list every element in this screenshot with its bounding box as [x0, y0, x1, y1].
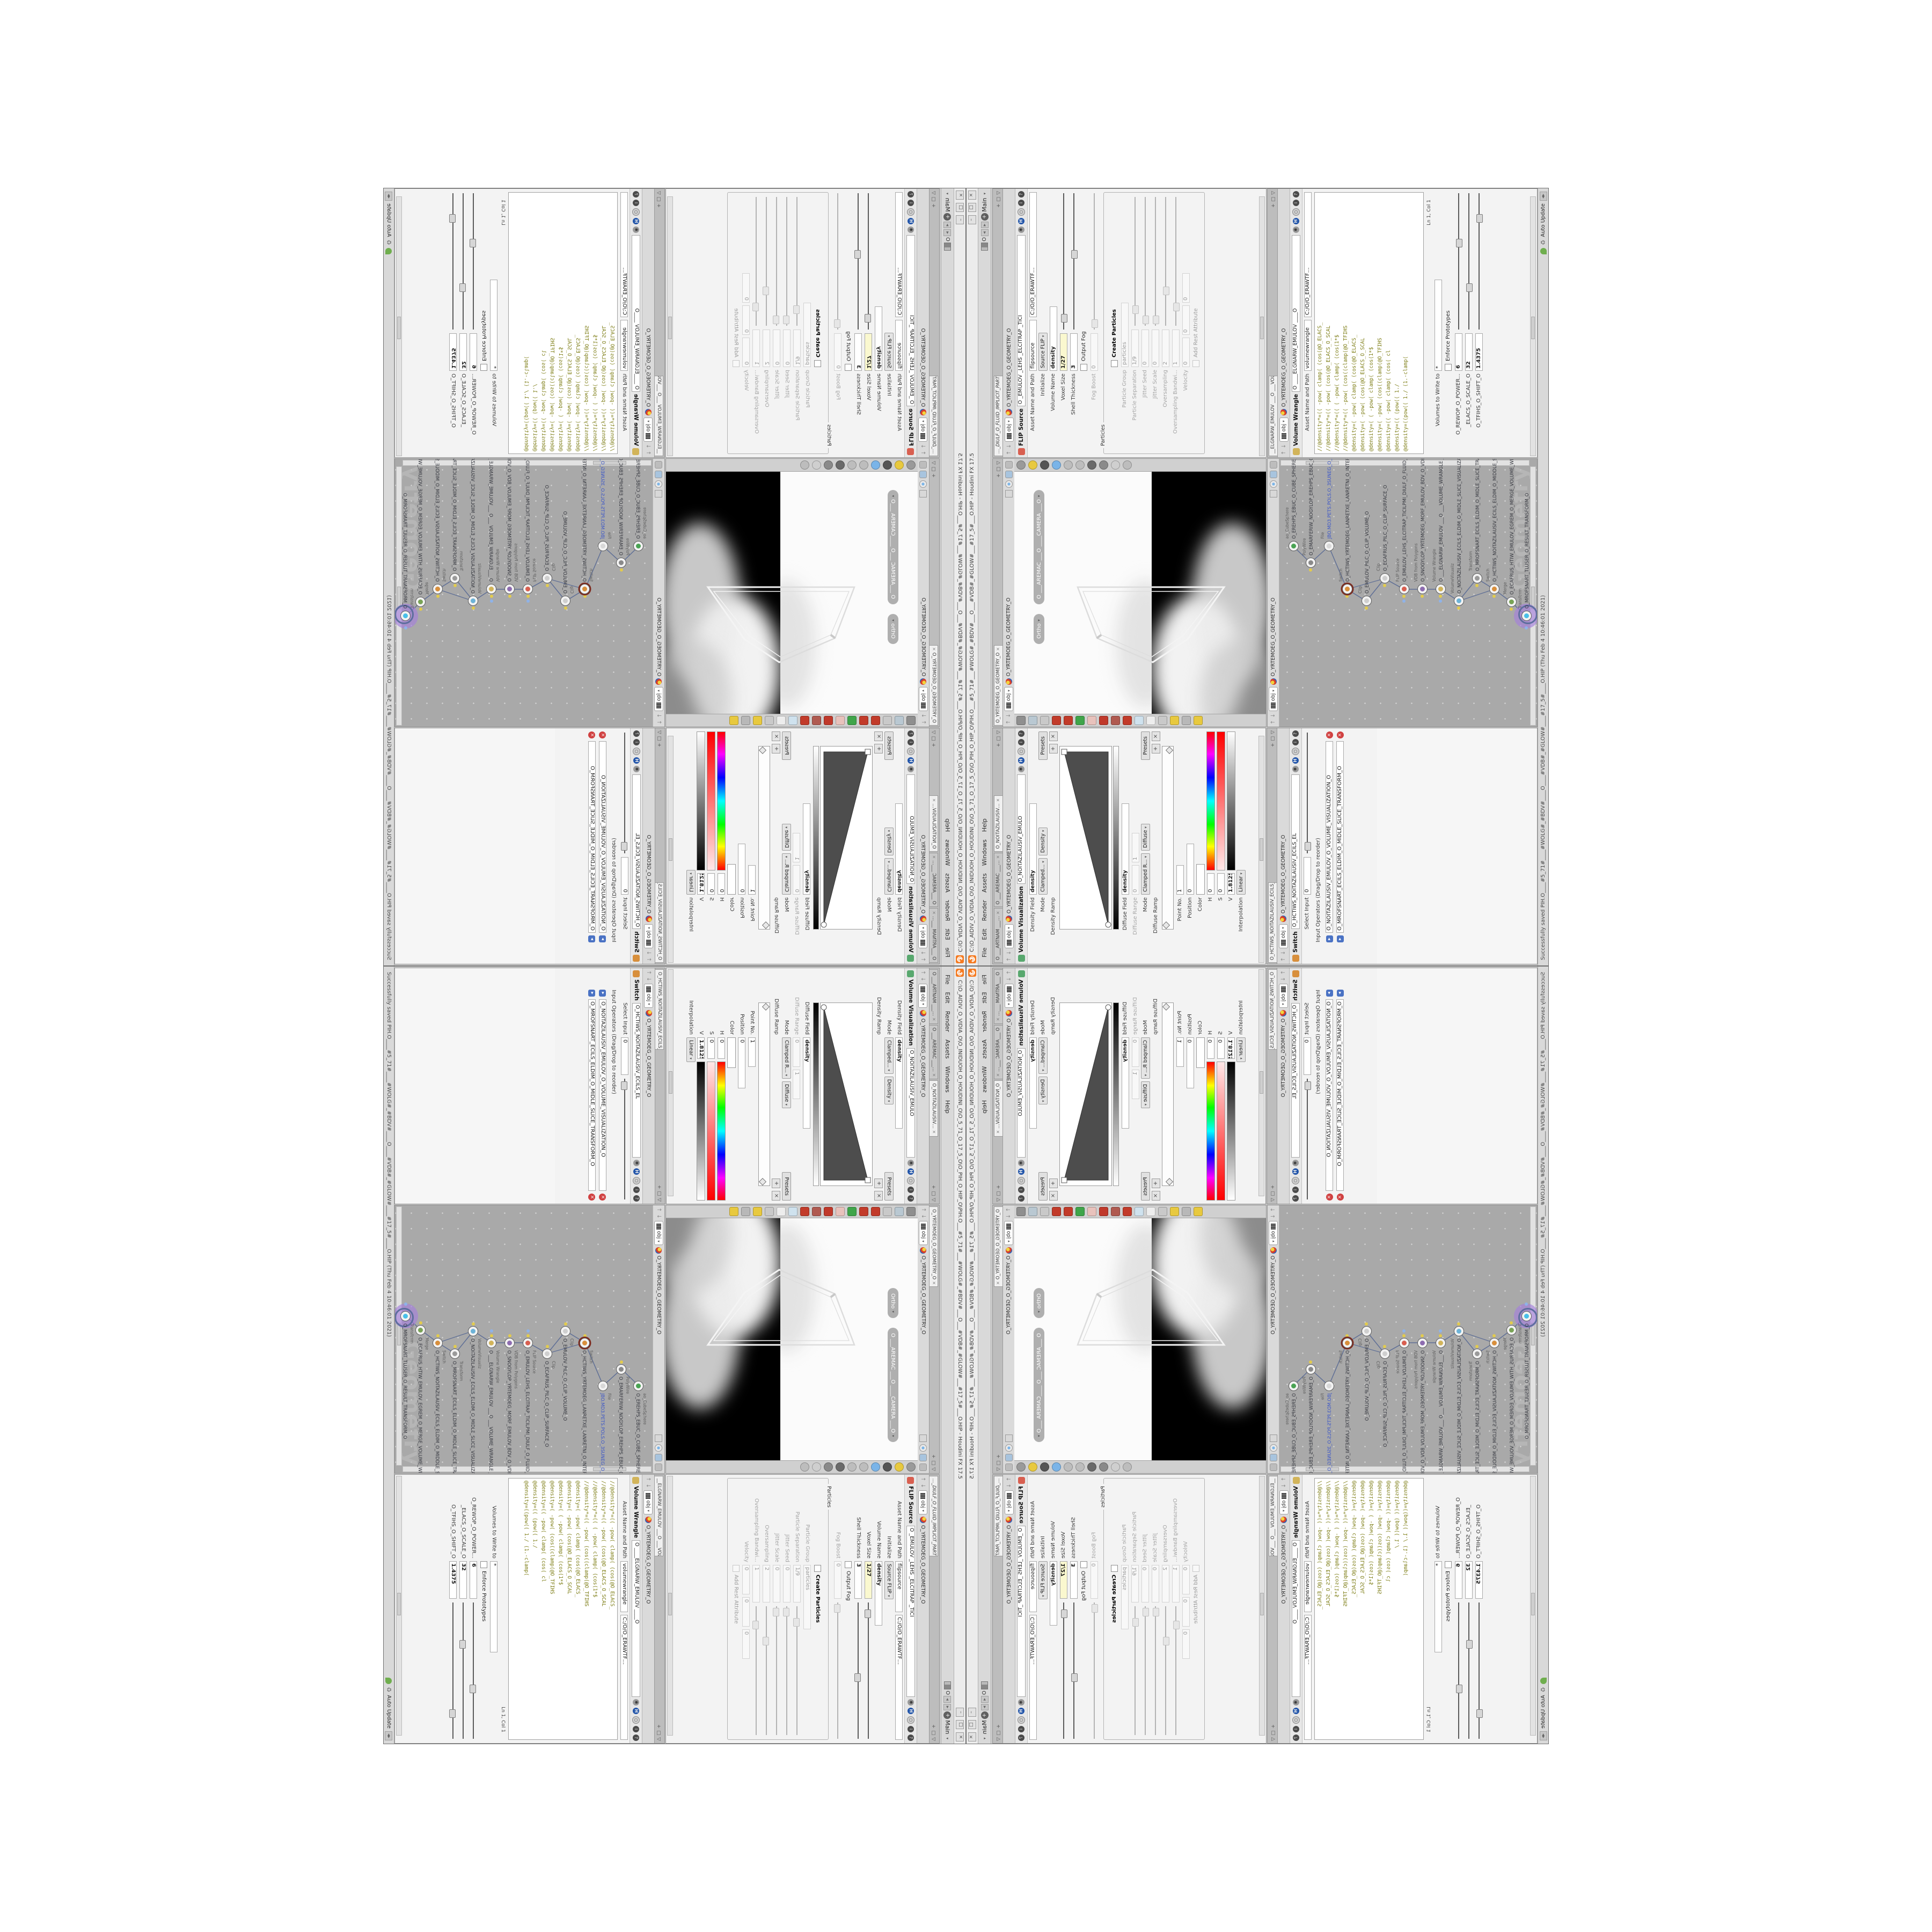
input-operator-field[interactable]: O_NOITAZILAUSIV_EMULOV_O_VOLUME_VISUALIZ… — [1326, 999, 1333, 1191]
value-slider[interactable] — [697, 731, 706, 870]
network-node[interactable] — [1289, 1381, 1299, 1391]
network-node[interactable] — [450, 573, 460, 583]
layout-icon[interactable] — [944, 243, 951, 251]
title-bar[interactable]: C:\O_AIDIV_O_VIDIA_O\O_INIDUOH_O_HOUDINI… — [967, 188, 978, 965]
nav-down-icon[interactable]: ↓ — [1006, 713, 1012, 718]
grid-tool-icon[interactable] — [1028, 1462, 1037, 1472]
menu-item[interactable]: Assets — [943, 1036, 952, 1063]
pane-tab[interactable]: O ___AREMAC ___…× — [994, 853, 1002, 908]
horn-hook-icon[interactable] — [824, 460, 833, 470]
prev-arrow-icon[interactable] — [883, 716, 892, 725]
view-tool-icon[interactable] — [1016, 716, 1026, 725]
node-path[interactable]: O_YRTEMOEG_O_GEOMETRY_O — [1280, 835, 1286, 914]
search-icon[interactable]: ○ — [907, 1177, 914, 1184]
link-chain-icon[interactable] — [800, 1462, 809, 1472]
network-path[interactable]: O_YRTEMOEG_O_GEOMETRY_O — [656, 598, 662, 677]
diffuse-field-input[interactable]: density — [803, 1037, 811, 1129]
spare-param-input[interactable]: 32 — [460, 1561, 467, 1599]
pane-controls[interactable]: +□▽ — [930, 1454, 936, 1473]
desktop-selector[interactable]: Main — [944, 1720, 951, 1736]
ramp-point-marker[interactable] — [1166, 1178, 1173, 1185]
spare-param-slider[interactable] — [1465, 1601, 1473, 1740]
node-name-label[interactable]: O_SNOGYLOP_YRTEMOEG_MORF_EMULOV_BDV_O_VD… — [506, 459, 511, 582]
horizontal-scrollbar[interactable] — [1258, 969, 1264, 1196]
axis-gizmo-icon[interactable] — [847, 716, 857, 725]
nav-up-icon[interactable]: ↑ — [1280, 957, 1286, 962]
diffuse-attr-dropdown[interactable]: Diffuse▾ — [1141, 824, 1150, 851]
oversampling-slider[interactable] — [1162, 1605, 1169, 1736]
search-icon[interactable]: ○ — [907, 1716, 914, 1724]
switch-name-field[interactable]: O_HCTIWS_NOITAZILAUSIV_ECILS_EL — [632, 774, 641, 929]
camera-pill[interactable]: O ___AREMAC ___O ____CAMERA ___O▾ — [1034, 1328, 1044, 1442]
network-node[interactable] — [523, 1338, 533, 1348]
bypass-flag[interactable] — [508, 1334, 511, 1337]
saturation-input[interactable]: 0 — [708, 1037, 715, 1059]
oversampling-input[interactable]: 2 — [1162, 1565, 1169, 1602]
view-mode-pill[interactable]: Ortho▾ — [1034, 614, 1044, 644]
enforce-prototypes-checkbox[interactable] — [480, 1561, 487, 1568]
gear-icon[interactable]: ✱ — [908, 766, 914, 772]
presets-button[interactable]: Presets — [782, 731, 791, 760]
select-input-slider[interactable] — [1304, 1078, 1311, 1201]
oversampling-slider[interactable] — [763, 1605, 771, 1736]
input-operator-field[interactable]: O_MROFSNART_ECILS_ELDIM_O_MIDLE_SLICE_TR… — [1336, 741, 1344, 933]
nav-down-icon[interactable]: ↓ — [920, 444, 926, 448]
viewport-tab[interactable]: O_YRTEMOEG_O_GEOMETRY_O× — [930, 645, 938, 726]
nav-up-icon[interactable]: ↑ — [1281, 451, 1287, 455]
fog-boost-input[interactable]: 0 — [835, 333, 842, 371]
network-node[interactable] — [1399, 1338, 1409, 1348]
nav-down-icon[interactable]: ↓ — [1006, 950, 1012, 955]
bypass-flag[interactable] — [1383, 1345, 1386, 1348]
hscript-icon[interactable]: H — [1018, 218, 1024, 224]
network-node[interactable] — [1521, 611, 1532, 621]
horizontal-scrollbar[interactable] — [1258, 736, 1264, 963]
fog-boost-slider[interactable] — [1091, 1601, 1098, 1740]
oversampling-bandwidth-slider[interactable] — [753, 196, 760, 327]
node-path[interactable]: O_YRTEMOEG_O_GEOMETRY_O — [920, 835, 926, 914]
select-arrow-icon[interactable] — [777, 1207, 786, 1216]
nav-up-icon[interactable]: ↑ — [920, 451, 926, 455]
network-node[interactable] — [542, 1349, 552, 1359]
wrangle-tab[interactable]: __ELGNARW_EMULOV ___O ___VOLUME_WRANGL…× — [655, 376, 663, 456]
viewport-canvas[interactable]: Ortho▾ O ___AREMAC ___O ____CAMERA ___O▾ — [666, 472, 918, 714]
menu-item[interactable]: Help — [980, 1096, 989, 1117]
shade-diamond-icon[interactable] — [741, 1207, 750, 1216]
spare-param-input[interactable]: 32 — [460, 333, 467, 371]
network-path[interactable]: O_YRTEMOEG_O_GEOMETRY_O — [656, 1256, 662, 1335]
diffuse-attr-dropdown[interactable]: Diffuse▾ — [782, 824, 791, 851]
nav-down-icon[interactable]: ↓ — [920, 1214, 926, 1218]
menu-item[interactable]: Help — [943, 1096, 952, 1117]
select-input[interactable]: 0 — [1304, 1037, 1311, 1075]
fog-boost-slider[interactable] — [1091, 192, 1098, 331]
tab-close-icon[interactable]: × — [996, 855, 1002, 859]
tripod-icon[interactable] — [1075, 1462, 1085, 1472]
shell-thickness-input[interactable]: 3 — [1070, 1561, 1078, 1599]
initialize-dropdown[interactable]: Source FLIP▾ — [884, 333, 894, 371]
network-canvas[interactable]: Geometry ao_CubeSphereO_EREHPS_EBUC_O_CU… — [1279, 459, 1537, 727]
initialize-dropdown[interactable]: Source FLIP▾ — [884, 1561, 894, 1599]
reorder-icon[interactable]: ▸ — [599, 935, 606, 942]
viewport-canvas[interactable]: Ortho▾ O ___AREMAC ___O ____CAMERA ___O▾ — [1014, 472, 1266, 714]
nav-up-icon[interactable]: ↑ — [1006, 451, 1012, 455]
nav-down-icon[interactable]: ↓ — [656, 713, 662, 718]
nav-up-icon[interactable]: ↑ — [920, 1477, 926, 1481]
bypass-flag[interactable] — [620, 568, 623, 572]
remove-input-icon[interactable]: × — [1326, 1194, 1333, 1201]
pane-link-icons[interactable] — [1270, 461, 1277, 497]
flip-name-field[interactable]: O _EMULOV _LEHS _ELCITRAP _TICI — [906, 235, 915, 406]
value-input[interactable]: 1.8125 — [698, 1037, 705, 1059]
add-rest-checkbox[interactable] — [733, 1565, 740, 1572]
saturation-slider[interactable] — [1217, 1062, 1225, 1201]
oversampling-bandwidth-input[interactable]: 1 — [753, 1565, 760, 1602]
mode-attr-dropdown[interactable]: Density▾ — [1038, 828, 1048, 856]
node-name-label[interactable]: O_NOITAZILAUSIV_ECILS_ELDIM_O_MIDLE_SLIC… — [470, 1338, 475, 1473]
asset-name-field[interactable]: flipsource — [896, 320, 903, 371]
context-dropdown[interactable]: obj▾ — [1005, 418, 1014, 442]
spare-param-input[interactable]: 6 — [1455, 1561, 1462, 1599]
trash-view-icon[interactable] — [859, 1462, 868, 1472]
select-input-slider[interactable] — [621, 1078, 629, 1201]
diffuse-mode-dropdown[interactable]: Clamped R...▾ — [1141, 853, 1150, 895]
saturation-slider[interactable] — [1217, 731, 1225, 870]
viewport-right-toolbar[interactable] — [1014, 1460, 1266, 1473]
pane-controls[interactable]: +□▽ — [996, 459, 1002, 478]
snap-tool-icon[interactable] — [1016, 460, 1026, 470]
network-node[interactable] — [1324, 541, 1334, 551]
select-input-slider[interactable] — [1304, 731, 1311, 854]
density-field-input[interactable]: density — [896, 1037, 903, 1129]
horn-hook-icon[interactable] — [824, 1462, 833, 1472]
pane-controls[interactable]: +□▽ — [930, 1724, 936, 1743]
restore-button[interactable]: □ — [956, 1720, 964, 1729]
cone-light-icon[interactable] — [1111, 460, 1120, 470]
shell-thickness-input[interactable]: 3 — [1070, 333, 1078, 371]
value-input[interactable]: 1.8125 — [1227, 873, 1235, 895]
rotate-tool-icon[interactable] — [812, 716, 821, 725]
horizontal-scrollbar[interactable] — [1259, 1476, 1265, 1736]
camera-pill[interactable]: O ___AREMAC ___O ____CAMERA ___O▾ — [1034, 490, 1044, 604]
hscript-icon[interactable]: H — [1292, 1168, 1299, 1175]
viewport-right-toolbar[interactable] — [666, 459, 918, 472]
layout-icon[interactable] — [981, 243, 988, 251]
ramp-delete-button[interactable]: × — [1152, 1191, 1160, 1201]
pane-scroll-left-icon[interactable]: ◂ — [944, 229, 952, 236]
frame-tool-icon[interactable] — [1064, 1207, 1073, 1216]
node-name-label[interactable]: O_NOITAZILAUSIV_ECILS_ELDIM_O_MIDLE_SLIC… — [1457, 1338, 1462, 1473]
nav-down-icon[interactable]: ↓ — [656, 1214, 662, 1218]
jitter-scale-slider[interactable] — [773, 196, 781, 327]
search-icon[interactable]: ○ — [633, 1177, 640, 1184]
camera-pill[interactable]: O ___AREMAC ___O ____CAMERA ___O▾ — [888, 1328, 898, 1442]
spare-param-slider[interactable] — [1455, 1601, 1462, 1740]
pane-controls[interactable]: +□▽ — [930, 189, 936, 208]
velocity-y-input[interactable]: 0 — [1182, 305, 1190, 335]
output-fog-checkbox[interactable] — [1080, 364, 1087, 371]
minimize-button[interactable]: – — [968, 1708, 976, 1717]
network-node[interactable] — [1489, 584, 1499, 594]
spare-param-input[interactable]: 6 — [1455, 333, 1462, 371]
nav-down-icon[interactable]: ↓ — [920, 713, 926, 718]
nav-up-icon[interactable]: ↑ — [1006, 957, 1012, 962]
node-path[interactable]: O_YRTEMOEG_O_GEOMETRY_O — [920, 328, 926, 407]
node-path[interactable]: O_YRTEMOEG_O_GEOMETRY_O — [920, 598, 926, 677]
view-mode-pill[interactable]: Ortho▾ — [888, 1288, 898, 1318]
pane-controls[interactable]: +□▽ — [930, 1185, 936, 1204]
jitter-scale-slider[interactable] — [773, 1605, 781, 1736]
title-bar[interactable]: C:\O_AIDIV_O_VIDIA_O\O_INIDUOH_O_HOUDINI… — [954, 188, 965, 965]
minimize-button[interactable]: – — [956, 215, 964, 224]
network-node[interactable] — [415, 1325, 426, 1335]
context-dropdown[interactable]: obj▾ — [919, 1490, 928, 1514]
context-dropdown[interactable]: obj▾ — [919, 687, 928, 711]
viewport-left-toolbar[interactable] — [1014, 1205, 1266, 1218]
menu-item[interactable]: Render — [980, 896, 989, 925]
color-swatch[interactable] — [1196, 1037, 1205, 1068]
node-name-label[interactable]: O_SNOGYLOP_YRTEMOEG_MORF_EMULOV_BDV_O_VD… — [1421, 1350, 1426, 1473]
pane-tab[interactable]: O_NOITAZILAUSIV…× — [930, 1080, 938, 1136]
horizontal-scrollbar[interactable] — [396, 196, 402, 456]
node-name-label[interactable]: O_SNOGYLOP_YRTEMOEG_MORF_EMULOV_BDV_O_VD… — [1421, 459, 1426, 582]
nav-down-icon[interactable]: ↓ — [920, 950, 926, 955]
switch-tab[interactable]: O_HCTIWS_NOITAZILAUSIV_ECILS_ELDIM_O_MID… — [655, 882, 664, 963]
ghost-handle-icon[interactable] — [836, 716, 845, 725]
pane-controls[interactable]: +□▽ — [930, 459, 936, 478]
bypass-flag[interactable] — [1510, 608, 1513, 611]
menu-item[interactable]: Render — [943, 1007, 952, 1036]
bypass-flag[interactable] — [1492, 1334, 1496, 1337]
td-view-button-icon[interactable] — [788, 1207, 797, 1216]
help-icon[interactable]: ? — [1018, 730, 1024, 737]
output-fog-checkbox[interactable] — [1080, 1561, 1087, 1568]
nav-down-icon[interactable]: ↓ — [920, 1483, 926, 1488]
presets-button[interactable]: Presets — [1038, 1172, 1048, 1201]
ramp-add-button[interactable]: + — [772, 744, 781, 753]
nav-down-icon[interactable]: ↓ — [646, 1483, 652, 1488]
horizontal-scrollbar[interactable] — [1530, 1476, 1536, 1736]
node-name-label[interactable]: O_HCTIWS_NOITAZILAUSIV_ECILS_ELDIM_O_MID… — [434, 1350, 440, 1473]
tab-close-icon[interactable]: × — [996, 1130, 1002, 1134]
pose-tool-icon[interactable] — [871, 716, 880, 725]
oversampling-slider[interactable] — [1162, 196, 1169, 327]
info-icon[interactable]: i — [1018, 739, 1024, 745]
cam-lock-icon[interactable] — [1052, 1462, 1061, 1472]
volviz-name-field[interactable]: O_NOITAZILAUSIV_EMULO — [1017, 774, 1026, 884]
ramp-delete-button[interactable]: × — [1049, 1191, 1058, 1201]
shade-cone-icon[interactable] — [1170, 716, 1179, 725]
info-icon[interactable]: i — [633, 1726, 639, 1732]
network-node[interactable] — [560, 1326, 570, 1336]
position-input[interactable]: 0 — [1187, 1037, 1194, 1088]
node-path[interactable]: O_YRTEMOEG_O_GEOMETRY_O — [646, 328, 652, 407]
asset-path-field[interactable]: C:/O/O_ERAWTF… — [1304, 192, 1312, 317]
oversampling-input[interactable]: 2 — [1162, 330, 1169, 367]
shade-lamp-icon[interactable] — [1194, 1207, 1203, 1216]
asset-path-field[interactable]: C:/O/O_ERAWTF… — [896, 1615, 903, 1740]
translate-tool-icon[interactable] — [824, 1207, 833, 1216]
network-node[interactable] — [1342, 1338, 1352, 1348]
velocity-z-input[interactable]: 0 — [1182, 1629, 1190, 1659]
particle-separation-input[interactable]: 1/9 — [1131, 330, 1139, 367]
node-name-label[interactable]: O_MROFSNART_TLUSER_O_RESULT_TRANSFORM_O — [402, 493, 407, 609]
nav-up-icon[interactable]: ↑ — [920, 970, 926, 975]
ramp-add-button[interactable]: + — [772, 1179, 781, 1188]
select-input[interactable]: 0 — [1304, 857, 1311, 895]
value-input[interactable]: 1.8125 — [1227, 1037, 1235, 1059]
reorder-icon[interactable]: ▸ — [1337, 990, 1344, 997]
asset-path-field[interactable]: C:/O/O_ERAWTF… — [621, 192, 628, 317]
shade-lamp-icon[interactable] — [729, 1207, 738, 1216]
vex-code-editor[interactable]: //@density*=(( -pow( clamp( (cos(@O_ELAC… — [508, 1478, 618, 1740]
network-node[interactable] — [523, 584, 533, 594]
node-path[interactable]: O_YRTEMOEG_O_GEOMETRY_O — [920, 1019, 926, 1097]
reorder-icon[interactable]: ▸ — [1337, 935, 1344, 942]
input-operator-field[interactable]: O_NOITAZILAUSIV_EMULOV_O_VOLUME_VISUALIZ… — [599, 999, 606, 1191]
pane-controls[interactable]: +□▽ — [996, 728, 1002, 747]
display-flag[interactable] — [1439, 1329, 1442, 1333]
bypass-flag[interactable] — [1383, 584, 1386, 587]
info-icon[interactable]: i — [1292, 739, 1299, 745]
flip-tab[interactable]: …_DIULF_O_FLUID_IMPLICIT_PARTI…× — [994, 1476, 1002, 1556]
value-slider[interactable] — [1227, 731, 1235, 870]
voxel-size-slider[interactable] — [865, 192, 873, 331]
menu-item[interactable]: Assets — [980, 1036, 989, 1063]
context-dropdown[interactable]: obj▾ — [1005, 984, 1014, 1008]
pane-controls[interactable]: +□▽ — [655, 1724, 661, 1743]
node-name-label[interactable]: O_EMULOV_PILC_O_CLIP_VOLUME_O — [1365, 1338, 1370, 1421]
trash-view-icon[interactable] — [1064, 1462, 1073, 1472]
tab-close-icon[interactable]: × — [996, 799, 1002, 802]
scale-tool-icon[interactable] — [800, 716, 809, 725]
pane-controls[interactable]: +□▽ — [1271, 1724, 1277, 1743]
hscript-icon[interactable]: H — [1293, 1708, 1299, 1714]
hscript-icon[interactable]: H — [633, 757, 640, 764]
velocity-y-input[interactable]: 0 — [743, 305, 750, 335]
presets-button[interactable]: Presets — [782, 1172, 791, 1201]
menu-item[interactable]: Render — [980, 1007, 989, 1036]
gear-icon[interactable]: ✱ — [1018, 766, 1024, 772]
desktop-selector[interactable]: Main — [944, 196, 951, 212]
info-icon[interactable]: i — [633, 1187, 640, 1193]
horizontal-scrollbar[interactable] — [396, 1476, 402, 1736]
add-rest-checkbox[interactable] — [1192, 360, 1199, 367]
axis-gizmo-icon[interactable] — [1075, 1207, 1085, 1216]
context-dropdown[interactable]: obj▾ — [1004, 1221, 1013, 1245]
help-icon[interactable]: ? — [1293, 191, 1299, 197]
network-node[interactable] — [468, 1326, 478, 1336]
select-input[interactable]: 0 — [621, 1037, 629, 1075]
update-mode-selector[interactable]: Auto Update — [1540, 203, 1546, 237]
snap-tool-icon[interactable] — [906, 460, 916, 470]
node-name-label[interactable]: O_EMULOV_PILC_O_CLIP_VOLUME_O — [562, 511, 567, 594]
bypass-flag[interactable] — [1439, 1334, 1442, 1337]
oversampling-input[interactable]: 2 — [763, 330, 771, 367]
shade-lamp-icon[interactable] — [1194, 716, 1203, 725]
search-icon[interactable]: ○ — [907, 208, 914, 216]
node-path[interactable]: O_YRTEMOEG_O_GEOMETRY_O — [1006, 1525, 1012, 1604]
help-icon[interactable]: ? — [908, 730, 914, 737]
help-icon[interactable]: ? — [908, 1735, 914, 1741]
trash-view-icon[interactable] — [859, 460, 868, 470]
node-name-label[interactable]: O_MROFSNART_TLUSER_O_RESULT_TRANSFORM_O — [1525, 1323, 1530, 1439]
network-node[interactable] — [1417, 1338, 1428, 1348]
node-name-label[interactable]: JBO.MD3.PETS.POLS.O_3SUNEG_O_GENUS3_0.SL… — [599, 1393, 605, 1473]
diffuse-range-max[interactable]: 1 — [1132, 1070, 1139, 1099]
bypass-flag[interactable] — [419, 1321, 422, 1324]
cone-light-icon[interactable] — [1111, 1462, 1120, 1472]
hscript-icon[interactable]: H — [1018, 1708, 1024, 1714]
jitter-scale-slider[interactable] — [1152, 196, 1159, 327]
nav-down-icon[interactable]: ↓ — [646, 950, 652, 955]
grid-tool-icon[interactable] — [895, 460, 904, 470]
snap-tool-icon[interactable] — [1016, 1462, 1026, 1472]
node-name-label[interactable]: O_EMARFERIW_NOGYLOP_EREHPS_EBUC_O_CUBE_S… — [618, 1377, 623, 1473]
spare-param-input[interactable]: 1.4375 — [450, 333, 457, 371]
restore-button[interactable]: □ — [956, 203, 964, 212]
pane-controls[interactable]: +□▽ — [1270, 1185, 1277, 1204]
node-name-label[interactable]: O_EMULOV_LEHS_ELCITRAP_TICILPMI_DIULF_O_… — [1402, 459, 1408, 582]
node-name-label[interactable]: O_MROFSNART_ECILS_ELDIM_O_MIDLE_SLICE_TR… — [451, 1361, 457, 1473]
ramp-add-button[interactable]: + — [1152, 744, 1160, 753]
jitter-seed-slider[interactable] — [784, 196, 791, 327]
next-arrow-icon[interactable] — [1158, 716, 1167, 725]
menu-item[interactable]: Help — [943, 815, 952, 836]
next-arrow-icon[interactable] — [1158, 1207, 1167, 1216]
bypass-flag[interactable] — [1492, 595, 1496, 598]
mode-attr-dropdown[interactable]: Density▾ — [884, 1077, 894, 1105]
gear-icon[interactable]: ✱ — [1293, 1699, 1299, 1706]
horizontal-scrollbar[interactable] — [667, 196, 673, 456]
search-icon[interactable]: ○ — [1292, 748, 1299, 755]
diffuse-ramp-editor[interactable] — [1162, 746, 1174, 930]
jitter-seed-input[interactable]: 0 — [1141, 1565, 1149, 1602]
presets-button[interactable]: Presets — [1141, 1172, 1150, 1201]
gear-icon[interactable]: ✱ — [908, 226, 914, 233]
info-icon[interactable]: i — [908, 1187, 914, 1193]
select-arrow-icon[interactable] — [1146, 716, 1155, 725]
bypass-flag[interactable] — [1345, 1334, 1349, 1337]
hue-input[interactable]: 0 — [718, 1037, 726, 1059]
bypass-flag[interactable] — [1457, 606, 1460, 610]
pane-tab[interactable]: O ___AREMAC ___…× — [994, 1025, 1002, 1080]
node-name-label[interactable]: O_EREHPS_EBUC_O_CUBE_SPHERE_O — [1292, 1393, 1297, 1473]
ghost-handle-icon[interactable] — [1087, 716, 1096, 725]
view-mode-pill[interactable]: Ortho▾ — [1034, 1288, 1044, 1318]
network-node[interactable] — [1380, 1349, 1390, 1359]
pane-link-icons[interactable] — [1005, 1435, 1013, 1471]
switch-tab[interactable]: O_HCTIWS_NOITAZILAUSIV_ECILS_ELDIM_O_MID… — [655, 969, 664, 1050]
search-icon[interactable]: ○ — [632, 208, 640, 216]
shade-cone-icon[interactable] — [753, 1207, 762, 1216]
ramp-delete-button[interactable]: × — [875, 731, 883, 741]
particle-separation-input[interactable]: 1/9 — [794, 1565, 801, 1602]
network-node[interactable] — [1454, 596, 1464, 606]
frame-tool-icon[interactable] — [859, 1207, 868, 1216]
frame-tool-icon[interactable] — [1064, 716, 1073, 725]
ramp-delete-button[interactable]: × — [772, 731, 781, 741]
asset-name-field[interactable]: volumewrangle — [621, 320, 628, 371]
shade-cone-icon[interactable] — [753, 716, 762, 725]
td-view-button-icon[interactable] — [1135, 716, 1144, 725]
velocity-x-input[interactable]: 0 — [743, 338, 750, 367]
remove-input-icon[interactable]: × — [599, 731, 606, 738]
input-operator-field[interactable]: O_MROFSNART_ECILS_ELDIM_O_MIDLE_SLICE_TR… — [588, 741, 596, 933]
reorder-icon[interactable]: ▸ — [599, 990, 606, 997]
bypass-flag[interactable] — [419, 608, 422, 611]
spare-param-slider[interactable] — [470, 192, 478, 331]
